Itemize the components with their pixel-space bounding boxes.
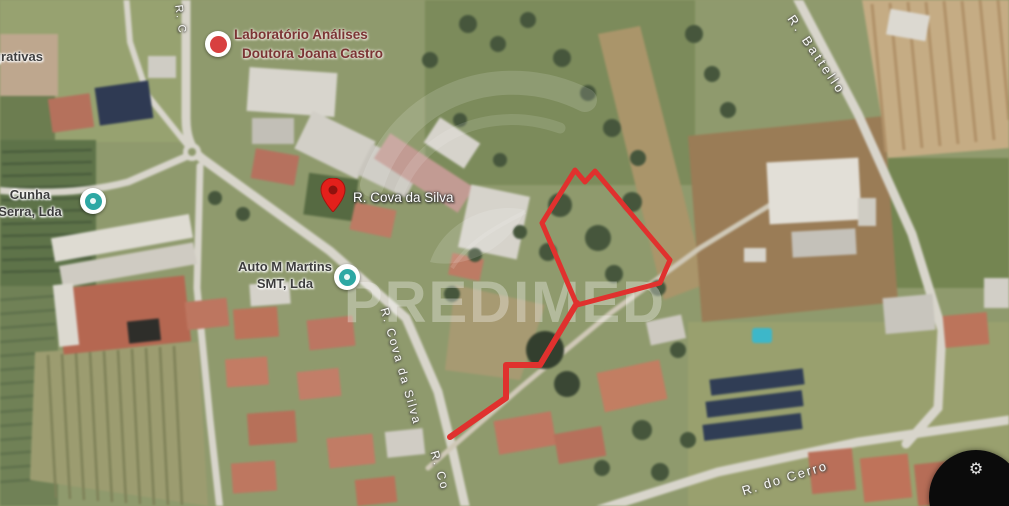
cunha-poi-marker[interactable] bbox=[80, 188, 106, 214]
store-icon bbox=[85, 193, 102, 210]
property-pin[interactable] bbox=[320, 178, 346, 212]
lab-poi-icon bbox=[210, 36, 227, 53]
lab-poi-label-line2: Doutora Joana Castro bbox=[234, 44, 383, 63]
lab-poi-label-line1: Laboratório Análises bbox=[234, 25, 383, 44]
auto-poi-label-line2: SMT, Lda bbox=[224, 275, 346, 292]
gear-icon: ⚙ bbox=[969, 459, 983, 506]
integrativas-label[interactable]: Integrativas bbox=[0, 48, 43, 65]
auto-poi-label-line1: Auto M Martins bbox=[224, 258, 346, 275]
lab-poi-label[interactable]: Laboratório Análises Doutora Joana Castr… bbox=[234, 25, 383, 63]
lab-poi-marker[interactable] bbox=[205, 31, 231, 57]
satellite-imagery bbox=[0, 0, 1009, 506]
map-canvas[interactable]: PREDIMED Laboratório Análises Doutora Jo… bbox=[0, 0, 1009, 506]
cunha-poi-label-line2: Serra, Lda bbox=[0, 203, 74, 220]
cunha-poi-label-line1: Cunha bbox=[0, 186, 74, 203]
property-pin-label: R. Cova da Silva bbox=[353, 190, 454, 205]
map-pin-icon bbox=[320, 178, 346, 212]
cunha-poi-label[interactable]: Cunha Serra, Lda bbox=[0, 186, 74, 220]
auto-poi-label[interactable]: Auto M Martins SMT, Lda bbox=[224, 258, 346, 292]
